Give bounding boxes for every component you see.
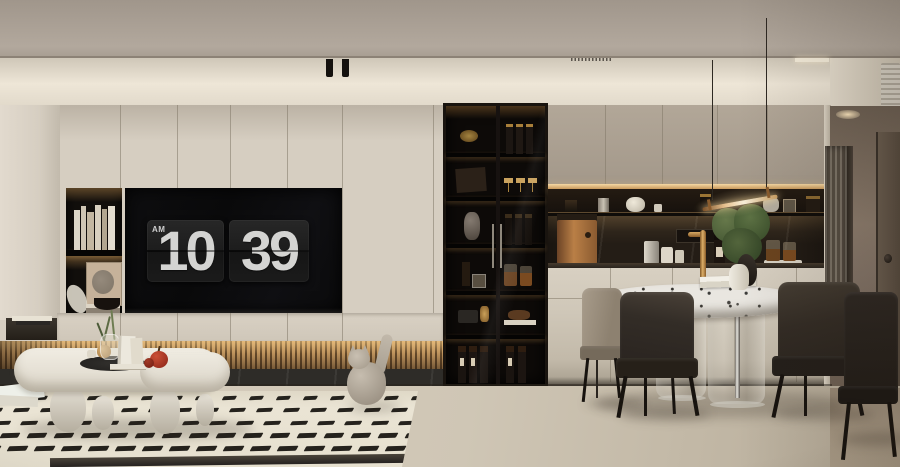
cabinet-seam [230, 105, 231, 188]
display-niche [66, 188, 122, 320]
cup [654, 204, 662, 212]
drawer-seam [287, 313, 288, 341]
cat-head [348, 349, 370, 369]
glass-reflection [446, 106, 545, 384]
drawer-seam [342, 313, 343, 341]
kitchen-upper-cabinets [548, 105, 830, 186]
table-leg [50, 386, 86, 432]
glass-jar [766, 240, 780, 261]
teapot [626, 197, 645, 212]
drawer-seam [230, 313, 231, 341]
glass-display-cabinet [443, 103, 548, 387]
chair-shadow [840, 432, 900, 446]
machine-dial [585, 232, 591, 238]
wall-shading [0, 105, 443, 141]
scene-root: AM 10 39 [0, 0, 900, 467]
hallway-spotlight [836, 110, 860, 119]
flip-card-hour: AM 10 [147, 220, 224, 282]
ceiling [0, 0, 900, 58]
cabinet-seam [767, 105, 768, 186]
table-leg [150, 388, 180, 434]
cove-light [795, 58, 829, 62]
cabinet-seam [177, 105, 178, 188]
cabinet-seam [120, 105, 121, 188]
cabinet-seam [287, 105, 288, 188]
tv-screen: AM 10 39 [125, 188, 342, 313]
fluted-glass-panel [825, 146, 847, 296]
apple-decor [144, 358, 154, 368]
mug [661, 247, 673, 264]
cat-sculpture [347, 362, 386, 405]
ceiling-cove [0, 58, 830, 105]
pendant-wire [712, 60, 713, 200]
track-spotlight-icon [326, 59, 333, 77]
minute-digits: 39 [241, 221, 297, 281]
chair-shadow [585, 398, 645, 408]
moka-pot [598, 198, 609, 213]
cabinet-seam [717, 105, 718, 186]
pedestal-bowl [94, 298, 120, 310]
table-leg [92, 396, 114, 430]
cabinet-seam [342, 105, 343, 188]
teacup [87, 350, 96, 358]
curved-wall-left [0, 105, 60, 320]
sculpted-vase [729, 264, 749, 290]
shelf-books [16, 321, 50, 325]
chair-shadow [620, 408, 710, 421]
glass-jar [783, 242, 796, 261]
flat-book [110, 364, 146, 369]
niche-light [66, 188, 122, 202]
table-leg [196, 394, 214, 426]
chair-back [620, 292, 694, 364]
mug [675, 250, 684, 264]
chair-back [844, 292, 898, 392]
ac-vent-icon [881, 63, 900, 109]
ceiling-vent-icon [571, 58, 611, 61]
base-ring [710, 401, 765, 408]
cabinet-seam [662, 105, 663, 186]
track-spotlight-icon [342, 59, 349, 77]
door-handle [884, 254, 892, 263]
pendant-wire [766, 18, 767, 198]
chair-shadow [775, 408, 875, 421]
meridiem-label: AM [152, 225, 165, 234]
chair-seat [616, 358, 698, 378]
book-row [74, 204, 118, 250]
cabinet-seam [605, 105, 606, 186]
hour-digits: 10 [157, 221, 213, 281]
drawer-seam [177, 313, 178, 341]
flip-card-minute: 39 [229, 220, 309, 282]
moka-pot [644, 241, 659, 264]
magazines [0, 395, 38, 407]
coffee-machine [557, 220, 597, 264]
